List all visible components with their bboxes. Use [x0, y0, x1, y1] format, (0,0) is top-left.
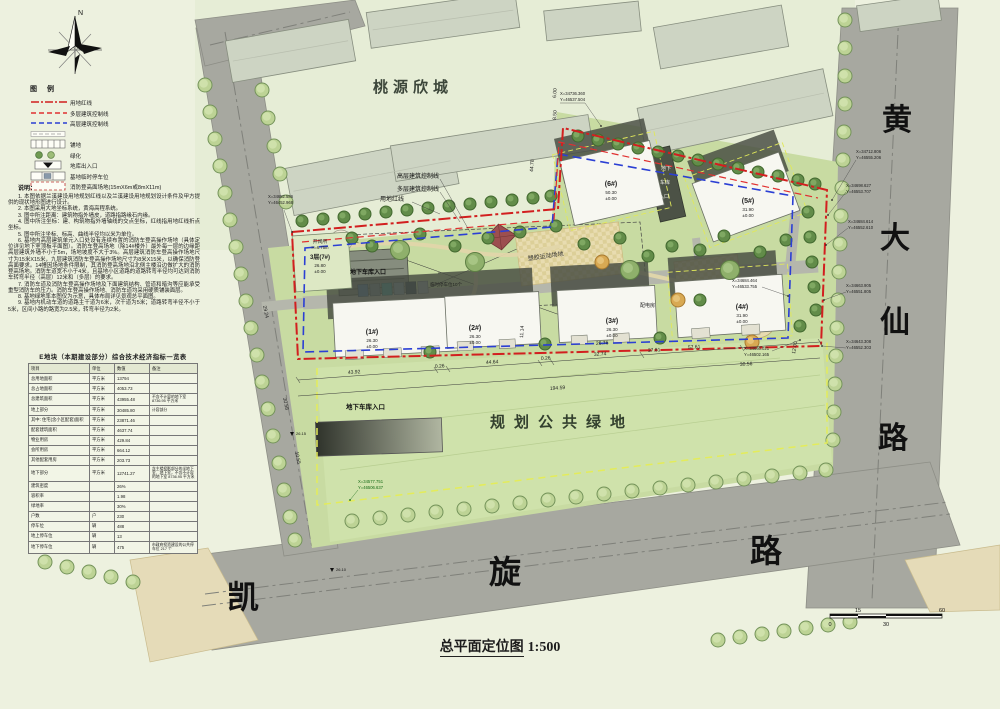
svg-text:26.80: 26.80 [314, 263, 326, 268]
table-row: 总建筑面积平方米43955.48不含不计容的地下室 8736.95 平方米 [29, 394, 198, 406]
label-switch-station: 开闭所 [313, 238, 328, 245]
building-label: (2#) [469, 325, 481, 332]
dim-label: 11.14 [519, 325, 526, 338]
note-line: 9. 基地内机动车道的道路主干道为6米，次干道为5米；道路转弯半径不小于5米，区… [8, 300, 200, 313]
svg-text:大: 大 [880, 222, 910, 255]
table-row: 其中: 住宅(含小区配套)面积平方米23871.46 [29, 415, 198, 425]
note-line: 4. 图中所注坐标：建、构筑物指外墙轴线的交点坐标，红线指用地红线折点坐标。 [8, 219, 200, 232]
indicators-table: E地块（本期建设部分）综合技术经济指标一览表 项目 单位 数值 备注 总用地面积… [28, 352, 198, 554]
svg-text:路: 路 [878, 422, 909, 455]
svg-text:Y=46502.165: Y=46502.165 [744, 352, 770, 357]
label-garage-entry-1: 地下车库入口 [350, 268, 386, 276]
table-row: 户数户230 [29, 511, 198, 521]
svg-text:Y=46452.968: Y=46452.968 [268, 200, 294, 205]
table-row: 物业用房平方米429.84 [29, 435, 198, 445]
note-line: 6. 基地内高层建筑单元入口处设有连续布置的消防车登高操作场地（具体定位详见地下… [8, 238, 200, 282]
table-row: 总用地面积平方米13794 [29, 374, 198, 384]
table-row: 其他配套用房平方米203.73 [29, 455, 198, 465]
table-row: 地上停车位辆13 [29, 531, 198, 541]
dim-label: 8.50 [552, 110, 559, 120]
label-temp-parking: 临时停车位10个 [430, 281, 463, 288]
dim-label: 0.26 [541, 355, 551, 362]
svg-text:Y=46553.707: Y=46553.707 [846, 189, 872, 194]
scale-label: 0 [828, 622, 831, 628]
notes-title: 说明： [8, 186, 200, 193]
svg-text:31.90: 31.90 [736, 313, 748, 318]
svg-text:车库: 车库 [660, 179, 670, 186]
svg-text:±0.00: ±0.00 [606, 333, 618, 338]
svg-text:凯: 凯 [227, 579, 259, 615]
dim-label: 194.59 [550, 385, 566, 392]
drawing-title-text: 总平面定位图 [440, 640, 524, 657]
svg-text:路: 路 [750, 533, 783, 569]
svg-text:±0.00: ±0.00 [605, 196, 617, 201]
dim-label: 43.92 [348, 369, 361, 376]
dim-label: 57.61 [688, 344, 701, 351]
spot-level: 26.15 [296, 431, 307, 436]
svg-text:Y=46552.610: Y=46552.610 [848, 225, 874, 230]
garage-ramp-south [315, 418, 442, 456]
drawing-title: 总平面定位图1:500 [0, 636, 1000, 656]
svg-text:旋: 旋 [489, 554, 521, 590]
svg-text:X=34577.751: X=34577.751 [358, 479, 384, 484]
label-switch-height: H=6.75m [311, 245, 329, 250]
svg-text:26.30: 26.30 [606, 327, 618, 332]
building-label: (6#) [605, 181, 617, 188]
svg-text:±0.00: ±0.00 [736, 319, 748, 324]
table-row: 总占地面积平方米4053.73 [29, 384, 198, 394]
building-label: (1#) [366, 329, 378, 336]
redline-label: 用地红线 [380, 195, 404, 203]
dim-label: 32.74 [594, 351, 607, 358]
table-row: 地下部分平方米12741.27含主楼投影部分的半地下室、地下室，不含不计容的地下… [29, 465, 198, 481]
svg-text:X=34684.464: X=34684.464 [732, 278, 758, 283]
building-label: (4#) [736, 304, 748, 311]
svg-text:±0.00: ±0.00 [314, 269, 326, 274]
svg-text:黄: 黄 [882, 104, 912, 137]
building-label: (5#) [742, 198, 754, 205]
dim-label: 6.00 [552, 88, 559, 98]
multistorey-line-label: 多层建筑控制线 [397, 185, 439, 193]
svg-text:Y=46552.303: Y=46552.303 [846, 345, 872, 350]
building-label: 3层(7#) [310, 253, 330, 261]
dim-label: 44.78 [529, 159, 536, 172]
highrise-line-label: 高层建筑控制线 [397, 172, 439, 180]
svg-text:50.30: 50.30 [605, 190, 617, 195]
svg-text:X=34663.905: X=34663.905 [846, 283, 872, 288]
spot-level: 26.10 [336, 567, 347, 572]
note-line: 1. 本图依据兰溪建设用地规划红线以及兰溪建设用地规划设计条件及甲方提供的现状地… [8, 194, 200, 207]
svg-text:X=34698.627: X=34698.627 [846, 183, 872, 188]
label-public-green: 规划公共绿地 [490, 413, 634, 431]
label-garage-entry-2: 地下车库入口 [346, 402, 385, 411]
dim-label: 37.81 [648, 347, 661, 354]
table-title: E地块（本期建设部分）综合技术经济指标一览表 [28, 352, 198, 361]
note-line: 7. 消防车道及消防车登高操作场地及下面建筑结构、管道和暗沟等应能承受重型消防车… [8, 282, 200, 295]
scale-label: 60 [939, 608, 945, 614]
svg-text:X=34736.360: X=34736.360 [560, 91, 586, 96]
label-power-room: 配电房 [640, 302, 655, 309]
svg-text:X=34712.806: X=34712.806 [856, 149, 882, 154]
dim-label: 44.64 [486, 359, 499, 366]
table-row: 地上部分平方米30485.80计容部分 [29, 405, 198, 415]
svg-text:X=34684.614: X=34684.614 [848, 219, 874, 224]
notes-panel: 说明： 1. 本图依据兰溪建设用地规划红线以及兰溪建设用地规划设计条件及甲方提供… [8, 186, 200, 313]
svg-text:Y=46537.504: Y=46537.504 [560, 97, 586, 102]
svg-text:X=34682.586: X=34682.586 [268, 194, 294, 199]
svg-text:Y=46506.637: Y=46506.637 [358, 485, 384, 490]
scale-label: 30 [883, 622, 889, 628]
svg-text:26.30: 26.30 [469, 334, 481, 339]
building-label: (3#) [606, 318, 618, 325]
svg-text:入口: 入口 [659, 194, 669, 200]
svg-text:Y=46551.805: Y=46551.805 [846, 289, 872, 294]
table-row: 建筑密度26% [29, 481, 198, 491]
table-row: 会所用房平方米664.12 [29, 445, 198, 455]
svg-text:X=34643.308: X=34643.308 [846, 339, 872, 344]
svg-text:±0.00: ±0.00 [366, 344, 378, 349]
svg-text:地下: 地下 [661, 165, 671, 172]
drawing-title-scale: 1:500 [528, 640, 561, 655]
svg-text:X=34666.021: X=34666.021 [744, 346, 770, 351]
dim-label: 26.76 [596, 340, 609, 347]
table-header-row: 项目 单位 数值 备注 [29, 364, 198, 374]
scale-label: 15 [855, 608, 861, 614]
svg-text:Y=46533.755: Y=46533.755 [732, 284, 758, 289]
svg-text:31.90: 31.90 [742, 207, 754, 212]
table-row: 地下停车位辆475市政府投资建设的公共停车位 217 个 [29, 541, 198, 553]
legend-panel: 图 例 用地红线 多层建筑控制线 高层建筑控制线 铺地 绿化 地库出入口 基地临… [30, 84, 200, 193]
table-row: 容积率1.98 [29, 491, 198, 501]
svg-text:±0.00: ±0.00 [742, 213, 754, 218]
svg-text:±0.00: ±0.00 [469, 340, 481, 345]
legend-title: 图 例 [30, 84, 200, 94]
svg-text:26.30: 26.30 [366, 338, 378, 343]
dim-label: 30.56 [740, 361, 753, 368]
north-label: N [78, 10, 83, 17]
site-plan-page: 43.92 0.26 44.64 0.26 32.74 57.61 194.59… [0, 0, 1000, 709]
label-taoyuanxincheng: 桃源欣城 [373, 78, 453, 96]
table-row: 停车位辆488 [29, 521, 198, 531]
dim-label: 0.26 [435, 363, 445, 370]
table-row: 配套建筑面积平方米4637.74 [29, 425, 198, 435]
table-row: 绿地率30% [29, 501, 198, 511]
svg-text:仙: 仙 [880, 306, 910, 339]
building-4 [674, 274, 786, 337]
building-2 [445, 292, 542, 349]
svg-text:Y=46555.206: Y=46555.206 [856, 155, 882, 160]
